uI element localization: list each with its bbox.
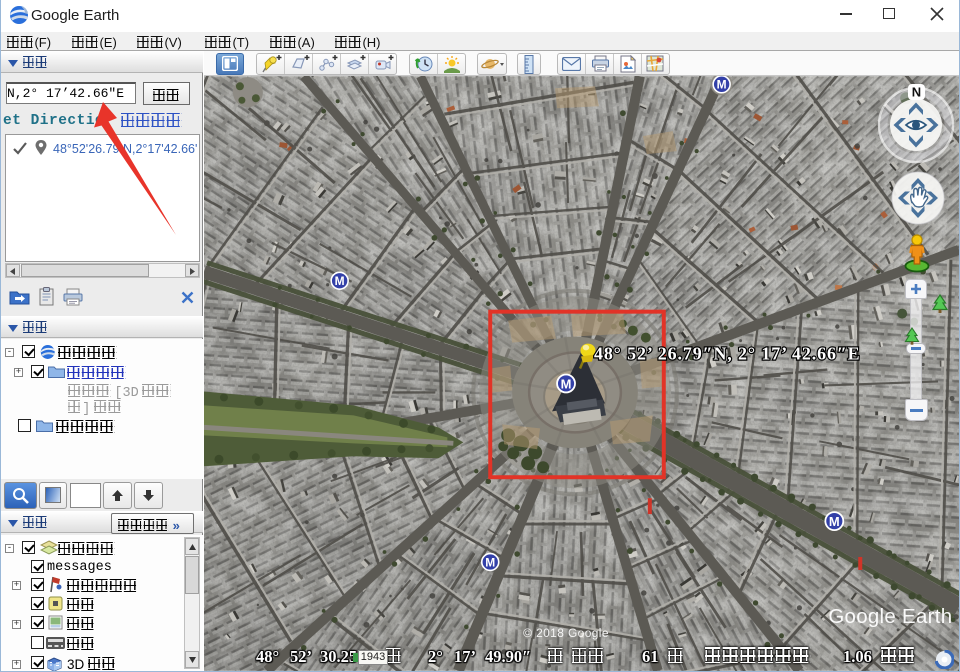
svg-text:Google Earth: Google Earth bbox=[828, 605, 952, 628]
svg-text:© 2018 Google: © 2018 Google bbox=[523, 626, 609, 640]
svg-text:M: M bbox=[829, 514, 840, 529]
svg-text:M: M bbox=[717, 78, 727, 92]
svg-text:M: M bbox=[485, 555, 495, 569]
svg-text:48° 52’ 26.79″N, 2° 17’ 42.66″: 48° 52’ 26.79″N, 2° 17’ 42.66″E bbox=[594, 344, 861, 364]
svg-text:M: M bbox=[561, 376, 572, 391]
svg-text:M: M bbox=[335, 274, 345, 288]
svg-text:N: N bbox=[912, 85, 921, 100]
